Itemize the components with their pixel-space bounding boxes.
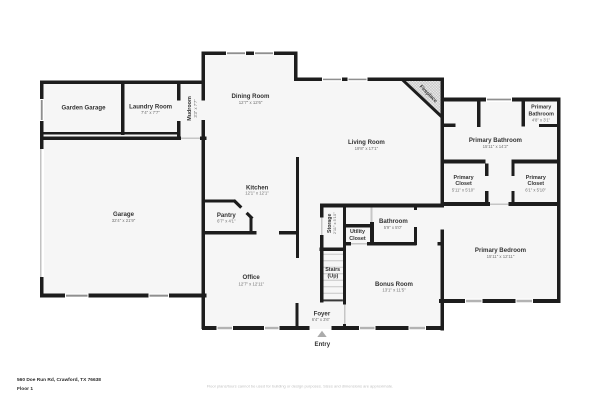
svg-text:7'4" x 7'7": 7'4" x 7'7" [141, 110, 160, 115]
svg-text:3'3" x 7'7": 3'3" x 7'7" [193, 99, 198, 118]
svg-text:560 Doe Run Rd, Crawford, TX 7: 560 Doe Run Rd, Crawford, TX 76638 [17, 377, 101, 383]
svg-text:5'11" x 5'10": 5'11" x 5'10" [452, 187, 475, 192]
svg-text:Living Room: Living Room [348, 139, 385, 146]
svg-text:Garden Garage: Garden Garage [61, 105, 106, 112]
svg-text:13'1" x 11'5": 13'1" x 11'5" [382, 288, 406, 293]
svg-text:Primary: Primary [531, 105, 551, 111]
svg-text:Closet: Closet [528, 181, 545, 187]
svg-text:Primary Bedroom: Primary Bedroom [475, 247, 527, 254]
svg-text:Utility: Utility [350, 229, 365, 235]
svg-text:15'11" x 14'2": 15'11" x 14'2" [483, 144, 509, 149]
svg-text:Closet: Closet [349, 236, 366, 242]
svg-text:12'7" x 12'6": 12'7" x 12'6" [239, 100, 263, 105]
svg-text:15'11" x 12'11": 15'11" x 12'11" [487, 254, 515, 259]
svg-text:Stairs: Stairs [325, 267, 340, 273]
svg-text:Office: Office [243, 274, 261, 281]
svg-text:Closet: Closet [455, 181, 472, 187]
svg-text:Primary: Primary [454, 175, 474, 181]
svg-text:5'9" x 5'0": 5'9" x 5'0" [384, 225, 403, 230]
svg-text:12'1" x 12'1": 12'1" x 12'1" [245, 191, 269, 196]
svg-text:Dining Room: Dining Room [232, 93, 270, 100]
svg-text:Primary: Primary [526, 175, 546, 181]
svg-text:6'1" x 5'10": 6'1" x 5'10" [525, 187, 546, 192]
svg-text:Floor plans/tours cannot be us: Floor plans/tours cannot be used for bui… [207, 383, 393, 388]
svg-text:Floor 1: Floor 1 [17, 386, 33, 392]
svg-text:32'4" x 21'9": 32'4" x 21'9" [112, 218, 136, 223]
svg-text:12'7" x 12'11": 12'7" x 12'11" [238, 281, 264, 286]
svg-text:Primary Bathroom: Primary Bathroom [469, 137, 523, 144]
svg-text:2'11" x 5'10": 2'11" x 5'10" [332, 212, 337, 234]
svg-text:19'8" x 17'1": 19'8" x 17'1" [355, 146, 379, 151]
svg-text:4'8" x 3'1": 4'8" x 3'1" [532, 117, 551, 122]
svg-text:6'4" x 3'6": 6'4" x 3'6" [312, 317, 331, 322]
svg-text:Entry: Entry [315, 341, 331, 348]
svg-text:(Up): (Up) [328, 273, 339, 279]
svg-text:Garage: Garage [113, 211, 135, 218]
svg-text:6'7" x 4'1": 6'7" x 4'1" [217, 219, 236, 224]
